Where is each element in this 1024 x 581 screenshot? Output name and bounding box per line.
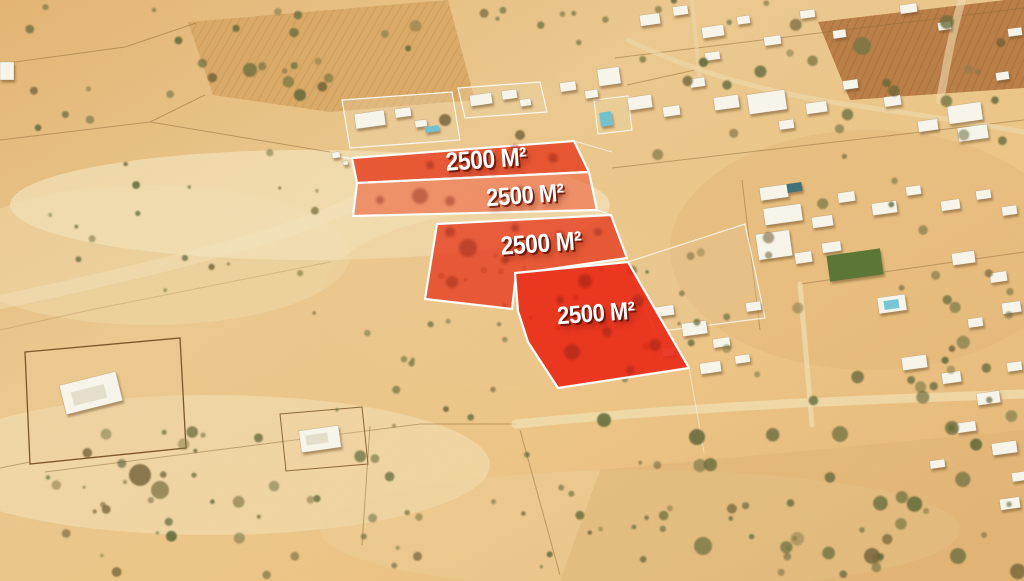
aerial-map: 2500 M²2500 M²2500 M²2500 M² xyxy=(0,0,1024,581)
parcel-2-label: 2500 M² xyxy=(485,181,564,211)
photo-grain xyxy=(0,0,1024,581)
satellite-imagery xyxy=(0,0,1024,581)
parcel-1-label: 2500 M² xyxy=(445,143,527,175)
parcel-3-label: 2500 M² xyxy=(500,227,582,259)
parcel-4-label: 2500 M² xyxy=(556,299,635,329)
